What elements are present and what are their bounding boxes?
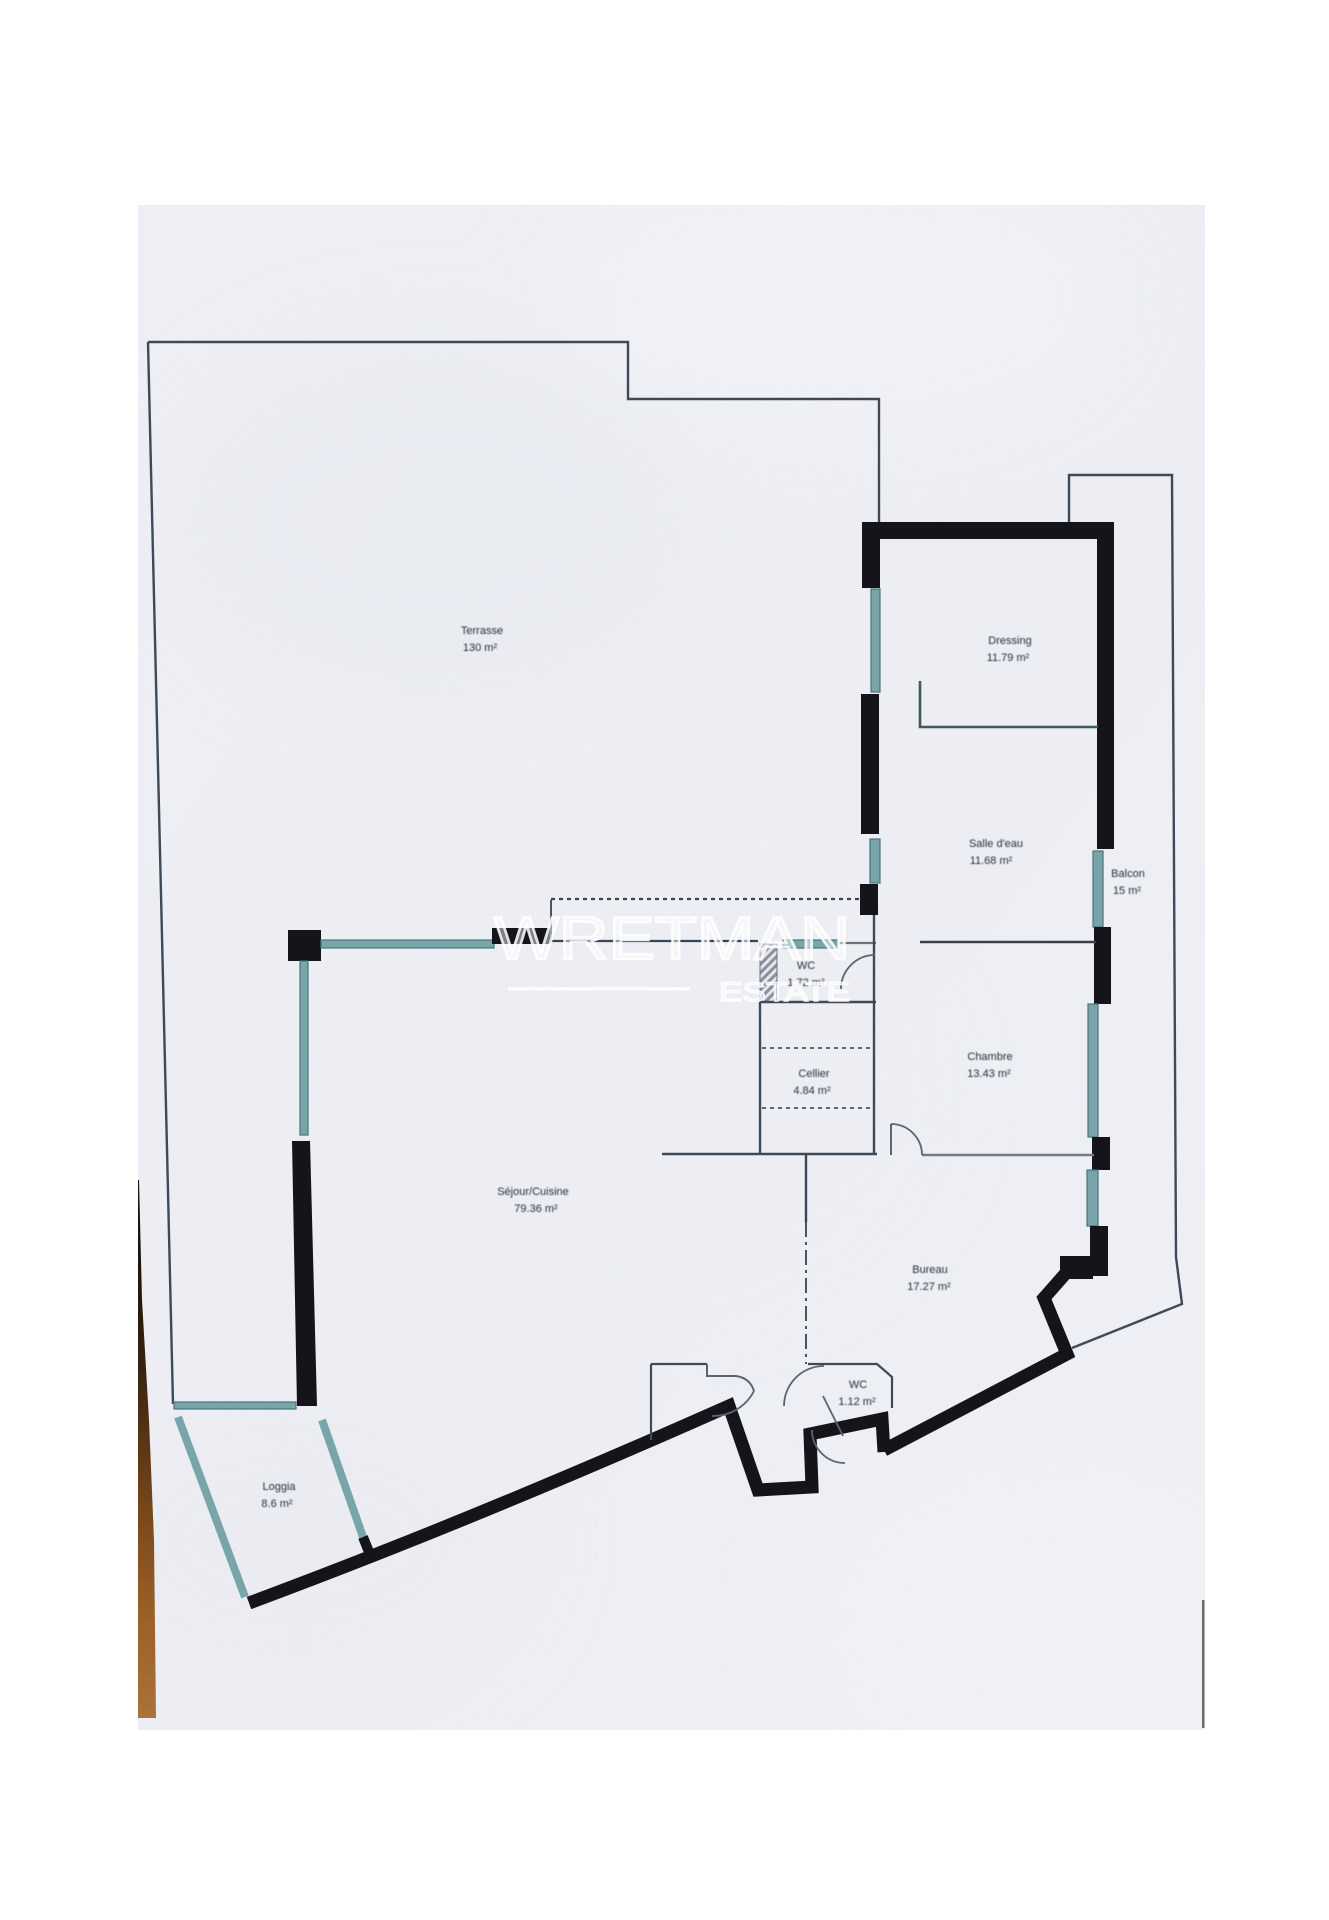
svg-text:Loggia: Loggia bbox=[262, 1481, 296, 1493]
svg-text:Terrasse: Terrasse bbox=[461, 625, 503, 637]
svg-text:13.43 m²: 13.43 m² bbox=[967, 1068, 1011, 1080]
svg-text:WC: WC bbox=[849, 1379, 867, 1391]
svg-text:Dressing: Dressing bbox=[988, 635, 1031, 647]
svg-text:Balcon: Balcon bbox=[1111, 868, 1145, 880]
svg-text:WRETMAN: WRETMAN bbox=[494, 905, 850, 972]
svg-text:11.68 m²: 11.68 m² bbox=[970, 855, 1013, 867]
svg-text:1.12 m²: 1.12 m² bbox=[838, 1396, 876, 1408]
svg-text:Séjour/Cuisine: Séjour/Cuisine bbox=[497, 1186, 569, 1198]
svg-text:17.27 m²: 17.27 m² bbox=[907, 1281, 951, 1293]
svg-text:130 m²: 130 m² bbox=[463, 642, 498, 654]
svg-text:11.79 m²: 11.79 m² bbox=[987, 652, 1030, 664]
svg-text:ESTATE: ESTATE bbox=[719, 977, 850, 1007]
svg-text:79.36 m²: 79.36 m² bbox=[514, 1203, 558, 1215]
svg-text:4.84 m²: 4.84 m² bbox=[793, 1085, 831, 1097]
svg-text:Salle d'eau: Salle d'eau bbox=[969, 838, 1023, 850]
svg-text:8.6 m²: 8.6 m² bbox=[261, 1498, 293, 1510]
svg-text:Cellier: Cellier bbox=[798, 1068, 830, 1080]
svg-text:Chambre: Chambre bbox=[967, 1051, 1012, 1063]
svg-text:Bureau: Bureau bbox=[912, 1264, 947, 1276]
svg-text:15 m²: 15 m² bbox=[1113, 885, 1141, 897]
